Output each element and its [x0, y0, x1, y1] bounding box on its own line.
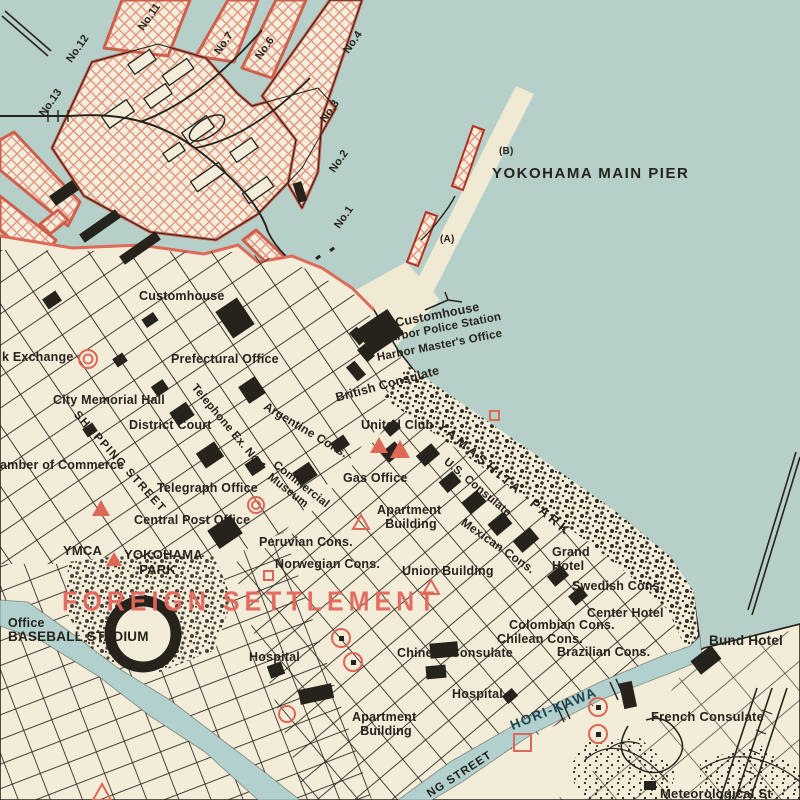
label-street-fragment: NG STREET [425, 749, 495, 800]
label-gas-office: Gas Office [343, 471, 408, 485]
label-brazilian-consulate: Brazilian Cons. [557, 645, 650, 659]
label-pier-no3: No.3 [318, 98, 342, 125]
label-baseball-stadium: BASEBALL STADIUM [8, 629, 149, 644]
label-customhouse: Customhouse [139, 289, 225, 303]
label-pier-no12: No.12 [64, 33, 92, 65]
label-peruvian-consulate: Peruvian Cons. [259, 535, 353, 549]
label-yokohama-park: YOKOHAMA PARK [124, 548, 203, 577]
label-bund-hotel: Bund Hotel [709, 633, 783, 648]
label-prefectural-office: Prefectural Office [171, 352, 279, 366]
label-hori-kawa: HORI-KAWA [508, 684, 599, 733]
label-colombian-consulate: Colombian Cons. [509, 618, 615, 632]
label-norwegian-consulate: Norwegian Cons. [275, 557, 380, 571]
label-pier-no11: No.11 [136, 1, 163, 33]
label-apartment-building-south: Apartment Building [352, 710, 416, 738]
label-french-consulate: French Consulate [651, 710, 764, 725]
label-chilean-consulate: Chilean Cons. [497, 632, 583, 646]
label-city-memorial-hall: City Memorial Hall [53, 393, 165, 407]
label-pier-b: (B) [499, 146, 513, 157]
label-pier-no2: No.2 [327, 148, 351, 175]
label-swedish-consulate: Swedish Cons. [572, 579, 664, 593]
label-foreign-settlement: FOREIGN SETTLEMENT [62, 586, 440, 617]
label-chamber-of-commerce: amber of Commerce [0, 458, 124, 472]
label-hospital-east: Hospital [452, 687, 503, 701]
label-pier-no6: No.6 [253, 35, 277, 62]
yokohama-harbor-map: No.11 No.12 No.13 No.7 No.6 No.4 No.3 No… [0, 0, 800, 800]
label-pier-no7: No.7 [212, 30, 236, 57]
label-pier-no13: No.13 [37, 87, 65, 119]
label-yamashita-park: YAMASHITA PARK [435, 419, 575, 540]
label-office: Office [8, 616, 45, 630]
label-district-court: District Court [129, 418, 212, 432]
label-pier-no4: No.4 [341, 29, 365, 56]
label-apartment-building-north: Apartment Building [377, 503, 441, 531]
map-labels: No.11 No.12 No.13 No.7 No.6 No.4 No.3 No… [0, 0, 800, 800]
label-meteorological-station: Meteorological St [660, 787, 772, 800]
label-union-building: Union Building [402, 564, 494, 578]
label-pier-a: (A) [440, 234, 454, 245]
label-yokohama-main-pier: YOKOHAMA MAIN PIER [492, 166, 689, 183]
label-hospital-west: Hospital [249, 650, 300, 664]
label-british-consulate: British Consulate [334, 363, 441, 404]
label-grand-hotel: Grand Hotel [552, 545, 590, 573]
label-telegraph-office: Telegraph Office [157, 481, 258, 495]
label-united-club: United Club [361, 418, 433, 432]
label-chinese-consulate: Chinese Consulate [397, 646, 513, 660]
label-central-post-office: Central Post Office [134, 513, 250, 527]
label-exchange: k Exchange [2, 350, 73, 364]
label-ymca: YMCA [63, 544, 102, 559]
label-commercial-museum: Commercial Museum [262, 459, 331, 521]
label-argentine-consulate: Argentine Cons. [261, 400, 350, 461]
label-pier-no1: No.1 [332, 204, 356, 231]
